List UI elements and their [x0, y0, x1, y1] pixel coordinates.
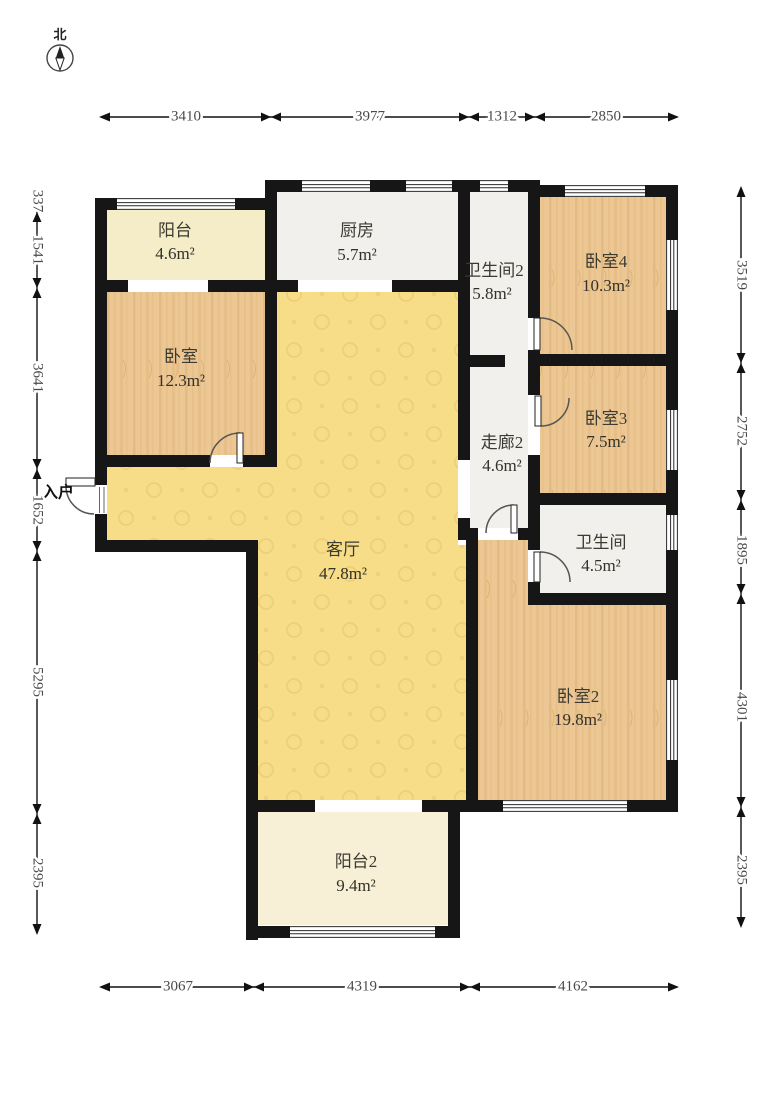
bedroom-label: 卧室: [164, 347, 198, 366]
wall: [246, 926, 290, 938]
wall: [540, 185, 565, 197]
wall: [466, 540, 478, 812]
window: [302, 180, 370, 192]
window: [117, 198, 235, 210]
dim-right-4: 2395: [734, 855, 750, 885]
dim-right-0: 3519: [734, 260, 750, 290]
bed4-area: 10.3m²: [582, 276, 630, 295]
dim-left-3: 1652: [30, 495, 46, 525]
floor-plan: 阳台 4.6m² 厨房 5.7m² 卫生间2 5.8m² 卧室4 10.3m² …: [0, 0, 777, 1115]
wall: [518, 528, 540, 540]
wall: [246, 800, 315, 812]
window: [290, 926, 435, 938]
dim-top-3: 2850: [591, 108, 621, 124]
wall: [95, 198, 107, 485]
bath-area: 4.5m²: [581, 556, 621, 575]
corridor2-label: 走廊2: [481, 433, 524, 452]
wall: [448, 812, 460, 938]
wall: [246, 540, 258, 940]
wall: [458, 180, 470, 460]
bath2-label: 卫生间2: [464, 261, 524, 280]
wall: [265, 180, 277, 467]
window: [503, 800, 627, 812]
living-area: 47.8m²: [319, 564, 367, 583]
wall: [422, 800, 466, 812]
window: [565, 185, 645, 197]
corridor2-area: 4.6m²: [482, 456, 522, 475]
dim-left-4: 5295: [30, 667, 46, 697]
bed2-area: 19.8m²: [554, 710, 602, 729]
wall: [370, 180, 406, 192]
bath-label: 卫生间: [576, 533, 627, 552]
dimension-bottom: 3067 4319 4162: [99, 978, 679, 994]
wall: [627, 800, 678, 812]
dim-top-0: 3410: [171, 108, 201, 124]
window: [666, 410, 678, 470]
window: [666, 240, 678, 310]
bed2-label: 卧室2: [557, 687, 600, 706]
wall: [466, 800, 503, 812]
wall: [666, 185, 678, 240]
dim-right-1: 2752: [734, 416, 750, 446]
wall: [528, 493, 678, 505]
dim-bottom-0: 3067: [163, 978, 194, 994]
wall: [243, 455, 277, 467]
wall: [95, 540, 258, 552]
balcony-label: 阳台: [158, 221, 192, 240]
dim-bottom-1: 4319: [347, 978, 377, 994]
bedroom-area: 12.3m²: [157, 371, 205, 390]
wall: [666, 310, 678, 410]
wall: [95, 455, 210, 467]
balcony2-area: 9.4m²: [336, 876, 376, 895]
kitchen-label: 厨房: [340, 221, 374, 240]
dimension-right: 3519 2752 1895 4301 2395: [734, 186, 750, 928]
wall: [470, 355, 505, 367]
bath2-area: 5.8m²: [472, 284, 512, 303]
dimension-left: 337 1541 3641 1652 5295 2395: [30, 190, 46, 935]
entrance-label: 入户: [42, 483, 74, 502]
dim-left-1: 1541: [30, 235, 46, 265]
dim-right-3: 4301: [734, 692, 750, 722]
wall: [528, 593, 678, 605]
wall: [208, 280, 298, 292]
dim-left-2: 3641: [30, 363, 46, 393]
north-label: 北: [53, 27, 66, 42]
bed3-floor: [540, 366, 666, 493]
bed3-label: 卧室3: [585, 409, 628, 428]
window: [406, 180, 452, 192]
window: [480, 180, 508, 192]
wall: [528, 185, 540, 318]
wall: [392, 280, 458, 292]
dim-left-5: 2395: [30, 858, 46, 888]
window: [666, 515, 678, 550]
dim-top-2: 1312: [487, 108, 517, 124]
bed4-label: 卧室4: [585, 252, 628, 271]
dimension-top: 3410 3977 1312 2850: [99, 108, 679, 124]
balcony2-label: 阳台2: [335, 852, 378, 871]
dim-right-2: 1895: [734, 535, 750, 565]
dim-left-0: 337: [30, 190, 46, 213]
compass: 北: [47, 27, 73, 71]
wall: [458, 528, 478, 540]
wall: [435, 926, 460, 938]
wall: [95, 280, 128, 292]
living-label: 客厅: [326, 540, 360, 559]
window: [666, 680, 678, 760]
balcony-area: 4.6m²: [155, 244, 195, 263]
wall: [666, 470, 678, 515]
dim-bottom-2: 4162: [558, 978, 588, 994]
dim-top-1: 3977: [355, 108, 386, 124]
bed3-area: 7.5m²: [586, 432, 626, 451]
wall: [528, 354, 678, 366]
floor-plan-page: 阳台 4.6m² 厨房 5.7m² 卫生间2 5.8m² 卧室4 10.3m² …: [0, 0, 777, 1115]
wall: [666, 550, 678, 680]
kitchen-area: 5.7m²: [337, 245, 377, 264]
